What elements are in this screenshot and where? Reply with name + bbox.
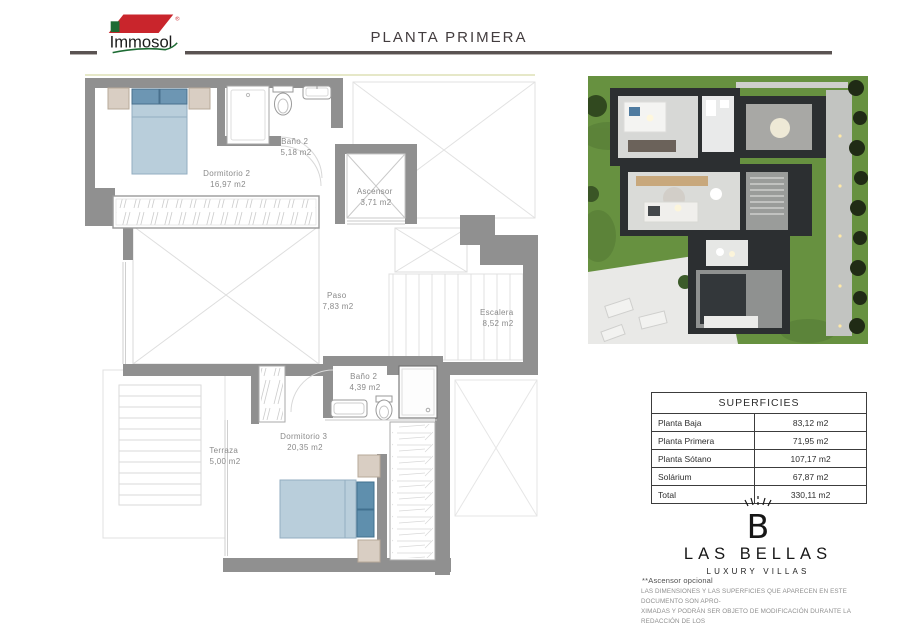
void-room [123,226,319,364]
floor-3d-render [588,76,868,344]
walkin-closet-dorm3 [390,422,435,560]
superficies-table: SUPERFICIES Planta Baja 83,12 m2 Planta … [651,392,867,504]
bed-dorm3 [280,455,380,562]
label-dormitorio3: Dormitorio 3 20,35 m2 [280,432,330,452]
table-row: Solárium 67,87 m2 [652,468,867,486]
table-title: SUPERFICIES [652,393,867,414]
monogram-letter: B [648,512,868,542]
elevator-footnote: **Ascensor opcional [642,576,713,585]
closet-center [259,366,285,422]
table-row: Planta Baja 83,12 m2 [652,414,867,432]
las-bellas-logo: B LAS BELLAS LUXURY VILLAS [648,494,868,576]
bath2-top-fixtures [227,86,331,144]
brand-tagline: LUXURY VILLAS [648,567,868,576]
plan-sheet: PLANTA PRIMERA ® Immosol [0,0,898,627]
floor-plan: Dormitorio 2 16,97 m2 Baño 2 5,18 m2 Asc… [75,70,565,580]
label-bano2-lower: Baño 2 4,39 m2 [349,372,380,392]
immosol-logo-icon: ® Immosol [97,12,185,58]
render-bath-lower [706,240,748,266]
label-paso: Paso 7,83 m2 [322,291,353,311]
registered-mark: ® [175,15,180,22]
side-walkway [826,90,852,336]
disclaimer-text: LAS DIMENSIONES Y LAS SUPERFICIES QUE AP… [641,587,889,627]
table-row: Planta Sótano 107,17 m2 [652,450,867,468]
immosol-logo: ® Immosol [97,12,185,58]
bath2-lower-fixtures [325,366,437,420]
render-stairs [746,172,788,230]
wardrobe-dorm2 [113,196,319,228]
bed-dorm2 [108,88,210,174]
brand-name: LAS BELLAS [648,545,868,564]
table-row: Planta Primera 71,95 m2 [652,432,867,450]
label-dormitorio2: Dormitorio 2 16,97 m2 [203,169,253,189]
lower-roof-right [455,380,537,516]
chimney-shape [111,21,120,32]
